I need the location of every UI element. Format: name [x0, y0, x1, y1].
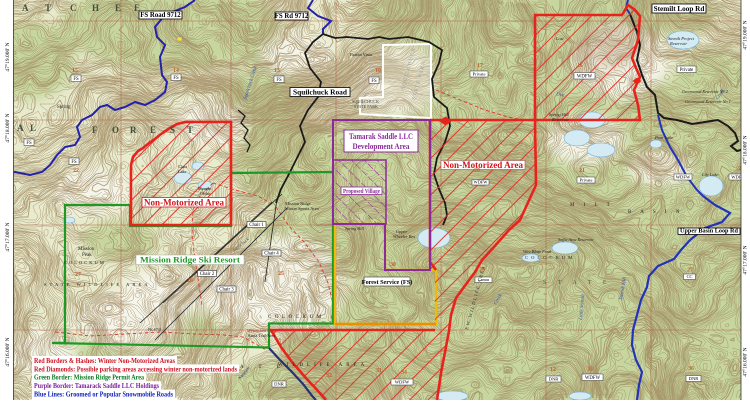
svg-text:Winter Sports Area: Winter Sports Area — [285, 206, 319, 211]
svg-text:S: S — [170, 125, 175, 135]
svg-text:B A S I N: B A S I N — [628, 210, 683, 215]
svg-text:47°18.000' N: 47°18.000' N — [742, 135, 749, 164]
svg-text:21: 21 — [579, 168, 585, 174]
svg-text:FS: FS — [276, 78, 282, 83]
svg-text:Spring Hill: Spring Hill — [345, 226, 365, 231]
svg-text:Private: Private — [680, 68, 694, 73]
svg-text:47°19.000' N: 47°19.000' N — [742, 20, 749, 49]
svg-text:Non-Motorized Area: Non-Motorized Area — [144, 197, 224, 208]
svg-text:O: O — [112, 125, 119, 135]
svg-text:WDFW: WDFW — [577, 74, 593, 79]
svg-text:S T A T E: S T A T E — [543, 280, 612, 286]
svg-text:47°18.000' N: 47°18.000' N — [4, 113, 11, 142]
svg-text:Forest Service (FS): Forest Service (FS) — [362, 279, 412, 286]
svg-text:A: A — [17, 123, 24, 133]
svg-text:47°19.000' N: 47°19.000' N — [4, 42, 11, 71]
svg-text:L: L — [30, 123, 36, 133]
svg-text:Reservoir: Reservoir — [551, 117, 569, 122]
svg-text:Upper Basin Loop Rd: Upper Basin Loop Rd — [680, 229, 739, 235]
svg-text:FS: FS — [26, 141, 32, 146]
svg-text:Lily Lake: Lily Lake — [701, 172, 719, 177]
svg-text:E: E — [115, 3, 121, 13]
svg-text:Chair 2: Chair 2 — [200, 272, 215, 277]
svg-text:STATE WILDLIFE AREA: STATE WILDLIFE AREA — [44, 282, 151, 287]
svg-text:13: 13 — [274, 68, 280, 74]
svg-text:WDFW: WDFW — [676, 174, 691, 179]
svg-text:14: 14 — [173, 68, 179, 74]
svg-text:20: 20 — [474, 168, 480, 174]
svg-text:Private: Private — [472, 71, 485, 76]
svg-text:T: T — [187, 125, 193, 135]
svg-text:12: 12 — [550, 367, 556, 373]
svg-text:34: 34 — [401, 370, 407, 376]
svg-text:36: 36 — [688, 366, 694, 372]
svg-text:Mission: Mission — [78, 247, 95, 252]
svg-text:COLOCKUM: COLOCKUM — [525, 255, 575, 260]
svg-text:FS: FS — [173, 76, 179, 81]
svg-text:DNR: DNR — [689, 376, 700, 381]
svg-text:FS: FS — [71, 160, 77, 165]
svg-text:Lake: Lake — [178, 169, 187, 174]
svg-text:Reservoir: Reservoir — [669, 41, 687, 46]
svg-text:FS Road 9712: FS Road 9712 — [140, 12, 181, 19]
svg-text:33: 33 — [587, 367, 593, 373]
svg-text:47°17.000' N: 47°17.000' N — [4, 222, 11, 251]
svg-text:DNR: DNR — [274, 381, 285, 386]
svg-text:16: 16 — [577, 63, 583, 69]
svg-text:R: R — [130, 125, 137, 135]
svg-text:FS: FS — [371, 79, 377, 84]
svg-text:Greenwood Reservoir No 1: Greenwood Reservoir No 1 — [685, 99, 731, 104]
svg-text:Stemilt Loop Rd: Stemilt Loop Rd — [654, 5, 705, 13]
svg-text:C: C — [70, 3, 77, 13]
svg-text:Mission Ridge Ski Resort: Mission Ridge Ski Resort — [140, 256, 240, 265]
svg-text:CC: CC — [687, 274, 693, 279]
svg-text:STATE PARK: STATE PARK — [354, 104, 378, 109]
svg-text:Spring: Spring — [57, 105, 71, 110]
svg-text:E: E — [134, 3, 140, 13]
svg-text:Chair 1: Chair 1 — [249, 223, 264, 228]
svg-text:Peak: Peak — [82, 253, 92, 258]
svg-text:Chair 3: Chair 3 — [219, 287, 234, 292]
svg-text:COLOCKUM: COLOCKUM — [268, 315, 325, 320]
svg-text:Pear Lake: Pear Lake — [654, 135, 673, 140]
svg-text:17: 17 — [477, 63, 483, 69]
svg-text:Development Area: Development Area — [353, 142, 410, 151]
svg-text:Cedar: Cedar — [200, 191, 211, 196]
svg-text:47°16.000' N: 47°16.000' N — [4, 337, 11, 366]
svg-text:25: 25 — [278, 271, 284, 277]
svg-text:PK 6731: PK 6731 — [148, 328, 161, 332]
svg-text:31: 31 — [376, 368, 382, 374]
svg-text:27: 27 — [687, 268, 693, 274]
svg-text:Bonita Vista: Bonita Vista — [350, 52, 372, 57]
svg-text:30: 30 — [390, 262, 396, 268]
svg-text:Wire Blaze Pond: Wire Blaze Pond — [523, 249, 552, 254]
svg-text:47°17.000' N: 47°17.000' N — [742, 245, 749, 274]
svg-text:E: E — [150, 125, 156, 135]
svg-text:15: 15 — [72, 68, 78, 74]
svg-text:WILDLIFE AREA: WILDLIFE AREA — [278, 363, 368, 368]
svg-text:Santa Trail Area: Santa Trail Area — [248, 333, 275, 338]
svg-text:T: T — [45, 3, 51, 13]
svg-text:22: 22 — [73, 168, 79, 174]
svg-text:WDFW: WDFW — [474, 179, 489, 184]
svg-text:Proposed Village: Proposed Village — [343, 189, 380, 195]
svg-text:Chair 4: Chair 4 — [264, 251, 279, 256]
svg-text:M I L T: M I L T — [570, 203, 614, 208]
svg-text:Wheeler Res: Wheeler Res — [393, 234, 415, 239]
svg-text:Suffix Area Reservoir: Suffix Area Reservoir — [558, 237, 594, 242]
svg-text:47°16.000' N: 47°16.000' N — [742, 347, 749, 376]
svg-text:Private: Private — [579, 177, 592, 182]
svg-text:COLOCKUM: COLOCKUM — [64, 260, 106, 265]
svg-text:WDFW: WDFW — [395, 379, 410, 384]
svg-text:A: A — [22, 3, 29, 13]
svg-text:Lost: Lost — [555, 36, 564, 41]
svg-text:F: F — [92, 125, 98, 135]
svg-text:Tamarak Saddle LLC: Tamarak Saddle LLC — [349, 132, 413, 141]
svg-text:32: 32 — [326, 373, 332, 379]
svg-text:H: H — [92, 3, 99, 13]
svg-text:FS: FS — [73, 77, 79, 82]
svg-text:FS Rd 9712: FS Rd 9712 — [275, 13, 309, 20]
svg-text:WDFW: WDFW — [585, 376, 601, 381]
svg-text:DNR: DNR — [549, 376, 560, 381]
svg-text:10: 10 — [375, 68, 381, 74]
svg-text:27: 27 — [75, 272, 81, 278]
svg-text:Non-Motorized Area: Non-Motorized Area — [443, 161, 523, 171]
svg-text:26: 26 — [187, 278, 193, 284]
svg-text:Squilchuck Road: Squilchuck Road — [293, 89, 347, 97]
